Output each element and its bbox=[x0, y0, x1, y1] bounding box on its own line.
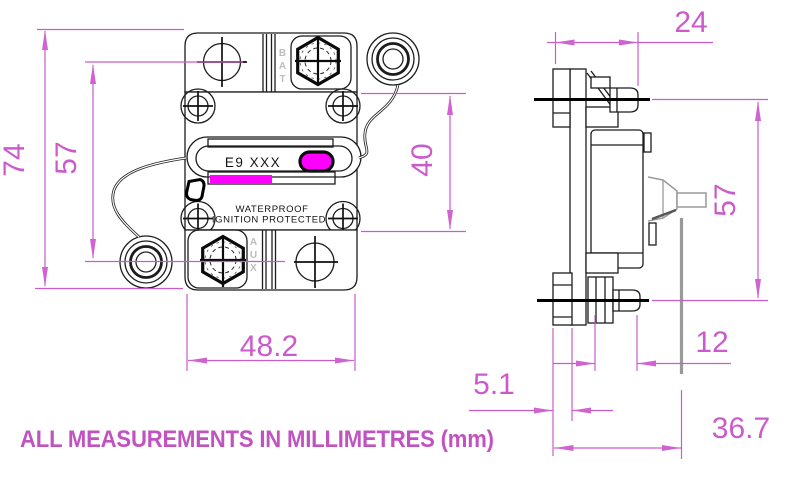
side-view bbox=[534, 69, 706, 374]
reset-button-side-icon bbox=[648, 177, 706, 221]
top-bracket-box bbox=[591, 77, 610, 88]
measurement-note: ALL MEASUREMENTS IN MILLIMETRES (mm) bbox=[20, 426, 494, 454]
dim-48-2-label: 48.2 bbox=[240, 330, 298, 363]
screw-top-right-icon bbox=[326, 89, 360, 123]
dim-36-7-label: 36.7 bbox=[712, 412, 770, 445]
screw-top-left-icon bbox=[181, 89, 215, 123]
bottom-clip bbox=[649, 223, 656, 245]
label-panel: E9 XXX bbox=[187, 137, 361, 177]
front-view: E9 XXX WATERPROOF IGNITION PROTECTED bbox=[113, 33, 419, 290]
part-number-label: E9 XXX bbox=[225, 155, 281, 170]
technical-drawing: E9 XXX WATERPROOF IGNITION PROTECTED bbox=[0, 0, 804, 477]
lever-icon bbox=[187, 180, 205, 201]
bat-terminal-label: BAT bbox=[277, 48, 287, 87]
cap-wire-bottom bbox=[113, 158, 186, 237]
bottom-bracket-arm bbox=[586, 253, 618, 273]
ignition-protected-label: IGNITION PROTECTED bbox=[212, 215, 326, 226]
side-body bbox=[591, 130, 643, 268]
terminal-cap-top-icon bbox=[367, 33, 419, 85]
dim-overall-depth: 36.7 bbox=[554, 390, 770, 459]
dim-74-label: 74 bbox=[0, 143, 31, 176]
drawing-canvas: E9 XXX WATERPROOF IGNITION PROTECTED bbox=[0, 0, 804, 477]
dim-width: 48.2 bbox=[187, 294, 355, 371]
dim-57-front-label: 57 bbox=[50, 141, 83, 174]
dim-5-1-label: 5.1 bbox=[473, 368, 515, 401]
indicator-bar bbox=[210, 175, 272, 183]
top-clip bbox=[644, 133, 651, 152]
reset-button bbox=[300, 152, 333, 171]
waterproof-label: WATERPROOF bbox=[235, 204, 308, 215]
dim-24-label: 24 bbox=[674, 6, 707, 39]
dim-57-side-label: 57 bbox=[709, 183, 742, 216]
cap-wire-top bbox=[359, 85, 398, 158]
dim-12-label: 12 bbox=[695, 326, 728, 359]
aux-terminal-label: AUX bbox=[248, 237, 258, 276]
dim-40-label: 40 bbox=[406, 143, 439, 176]
